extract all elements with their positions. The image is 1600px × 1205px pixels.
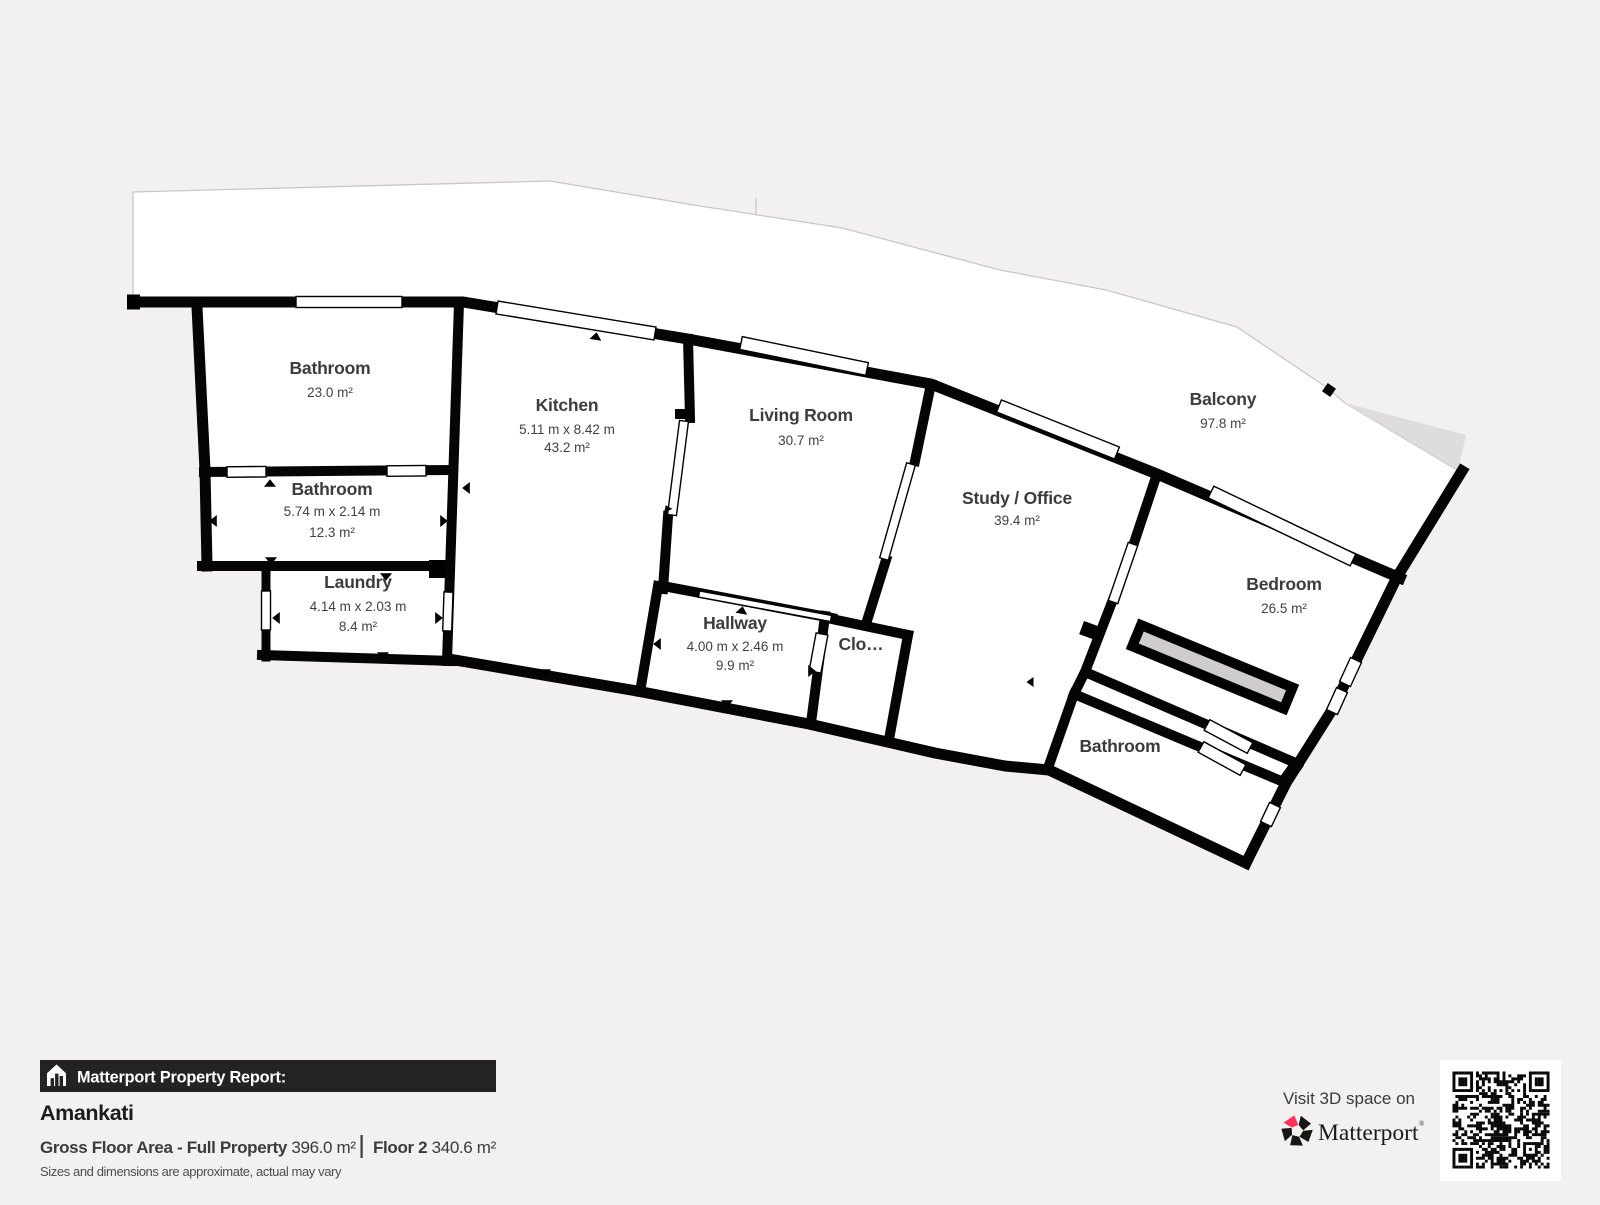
svg-text:Hallway: Hallway	[703, 613, 767, 633]
svg-text:5.11 m x 8.42 m: 5.11 m x 8.42 m	[519, 422, 615, 437]
svg-text:39.4 m²: 39.4 m²	[994, 513, 1040, 528]
svg-text:Gross Floor Area - Full Proper: Gross Floor Area - Full Property 396.0 m…	[40, 1138, 356, 1157]
svg-text:Study / Office: Study / Office	[962, 488, 1072, 508]
svg-text:Bathroom: Bathroom	[289, 358, 370, 378]
svg-text:Floor 2 340.6 m²: Floor 2 340.6 m²	[373, 1138, 497, 1157]
svg-text:Laundry: Laundry	[324, 572, 392, 592]
svg-text:30.7 m²: 30.7 m²	[778, 433, 824, 448]
svg-text:23.0 m²: 23.0 m²	[307, 385, 353, 400]
svg-text:26.5 m²: 26.5 m²	[1261, 601, 1307, 616]
svg-text:4.00 m x 2.46 m: 4.00 m x 2.46 m	[687, 639, 784, 654]
svg-text:Balcony: Balcony	[1190, 389, 1257, 409]
svg-text:97.8 m²: 97.8 m²	[1200, 416, 1246, 431]
svg-text:43.2 m²: 43.2 m²	[544, 440, 590, 455]
svg-text:Visit 3D space on: Visit 3D space on	[1283, 1089, 1415, 1108]
svg-text:Living Room: Living Room	[749, 405, 853, 425]
svg-text:Matterport Property Report:: Matterport Property Report:	[77, 1069, 286, 1087]
svg-text:9.9 m²: 9.9 m²	[716, 658, 755, 673]
svg-text:Bathroom: Bathroom	[291, 479, 372, 499]
svg-text:Kitchen: Kitchen	[536, 395, 599, 415]
svg-text:5.74 m x 2.14 m: 5.74 m x 2.14 m	[284, 504, 381, 519]
svg-text:Bathroom: Bathroom	[1079, 736, 1160, 756]
svg-text:4.14 m x 2.03 m: 4.14 m x 2.03 m	[310, 599, 407, 614]
svg-text:Bedroom: Bedroom	[1246, 574, 1321, 594]
svg-text:®: ®	[1419, 1120, 1425, 1128]
svg-text:Sizes and dimensions are appro: Sizes and dimensions are approximate, ac…	[40, 1164, 342, 1179]
svg-text:Matterport: Matterport	[1318, 1120, 1419, 1146]
svg-text:8.4 m²: 8.4 m²	[339, 619, 378, 634]
svg-text:Amankati: Amankati	[40, 1101, 134, 1125]
svg-text:Clo…: Clo…	[839, 634, 884, 654]
svg-text:12.3 m²: 12.3 m²	[309, 525, 355, 540]
